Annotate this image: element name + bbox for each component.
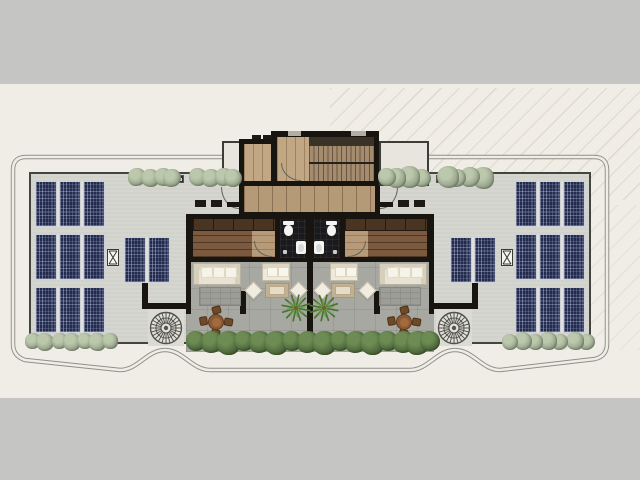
loveseat-cushion [346, 267, 357, 277]
round-table-top [400, 318, 409, 327]
sofa-cushion [201, 267, 214, 279]
solar-panel [83, 181, 105, 227]
floor-plan-canvas [0, 0, 640, 480]
lounge-cushion [244, 281, 262, 299]
solar-panel-group [35, 287, 105, 333]
solar-panel [35, 181, 57, 227]
sectional-sofa [379, 263, 427, 285]
sofa-cushion [387, 267, 400, 279]
loveseat-cushion [267, 267, 278, 277]
spiral-feature [148, 310, 184, 346]
roof-hatch-marker [107, 249, 119, 266]
lounge-cushion [358, 281, 376, 299]
solar-panel [83, 234, 105, 280]
lounge-rug [379, 287, 421, 306]
shrub-green [420, 331, 440, 351]
solar-panel-group [515, 181, 585, 227]
sectional-sofa [193, 263, 241, 285]
roof-hatch-marker [501, 249, 513, 266]
solar-panel [539, 234, 561, 280]
solar-panel [563, 234, 585, 280]
solar-panel [59, 181, 81, 227]
solar-panel-group [450, 237, 496, 283]
palm-plant [308, 292, 340, 324]
solar-panel [124, 237, 146, 283]
solar-panel [59, 287, 81, 333]
round-table [396, 314, 412, 330]
terrace-chair [223, 317, 233, 326]
round-table [208, 314, 224, 330]
sofa-cushion [411, 267, 423, 278]
solar-panel [515, 287, 537, 333]
sofa-arm-left [380, 264, 385, 284]
terrace-chair [386, 316, 395, 326]
shrub-sage [102, 333, 118, 349]
shrub-sage [378, 168, 396, 186]
shrub-sage [566, 332, 584, 350]
solar-panel [83, 287, 105, 333]
solar-panel-group [124, 237, 170, 283]
terrace-chair [411, 317, 421, 326]
solar-panel-group [515, 287, 585, 333]
loveseat-cushion [335, 267, 346, 277]
solar-panel [59, 234, 81, 280]
solar-panel-group [35, 181, 105, 227]
solar-panel [450, 237, 472, 283]
solar-panel [35, 234, 57, 280]
shrub-sage [502, 334, 518, 350]
solar-panel [474, 237, 496, 283]
solar-panel [563, 287, 585, 333]
terrace-chair [198, 316, 207, 326]
sofa-arm-left [194, 264, 199, 284]
solar-panel-group [515, 234, 585, 280]
solar-panel [539, 181, 561, 227]
solar-panel [35, 287, 57, 333]
shrub-sage [224, 169, 242, 187]
plan-dynamic-layer [0, 0, 640, 480]
shrub-sage [437, 166, 459, 188]
spiral-feature [436, 310, 472, 346]
solar-panel-group [35, 234, 105, 280]
sofa-cushion [399, 267, 412, 279]
loveseat [330, 263, 358, 281]
shrub-sage [163, 169, 181, 187]
round-table-top [212, 318, 221, 327]
solar-panel [515, 234, 537, 280]
loveseat [262, 263, 290, 281]
sofa-cushion [225, 267, 237, 278]
solar-panel [148, 237, 170, 283]
solar-panel [515, 181, 537, 227]
solar-panel [539, 287, 561, 333]
sofa-cushion [213, 267, 226, 279]
solar-panel [563, 181, 585, 227]
lounge-rug [199, 287, 241, 306]
loveseat-cushion [278, 267, 289, 277]
